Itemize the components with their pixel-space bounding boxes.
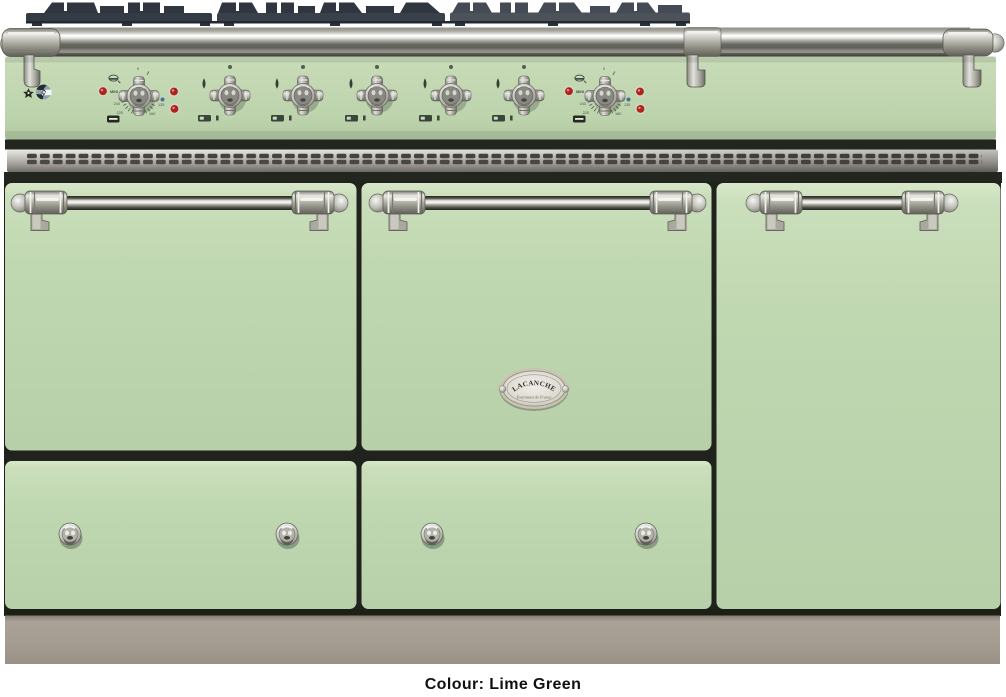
svg-text:Fourneaux de France: Fourneaux de France (516, 395, 552, 400)
